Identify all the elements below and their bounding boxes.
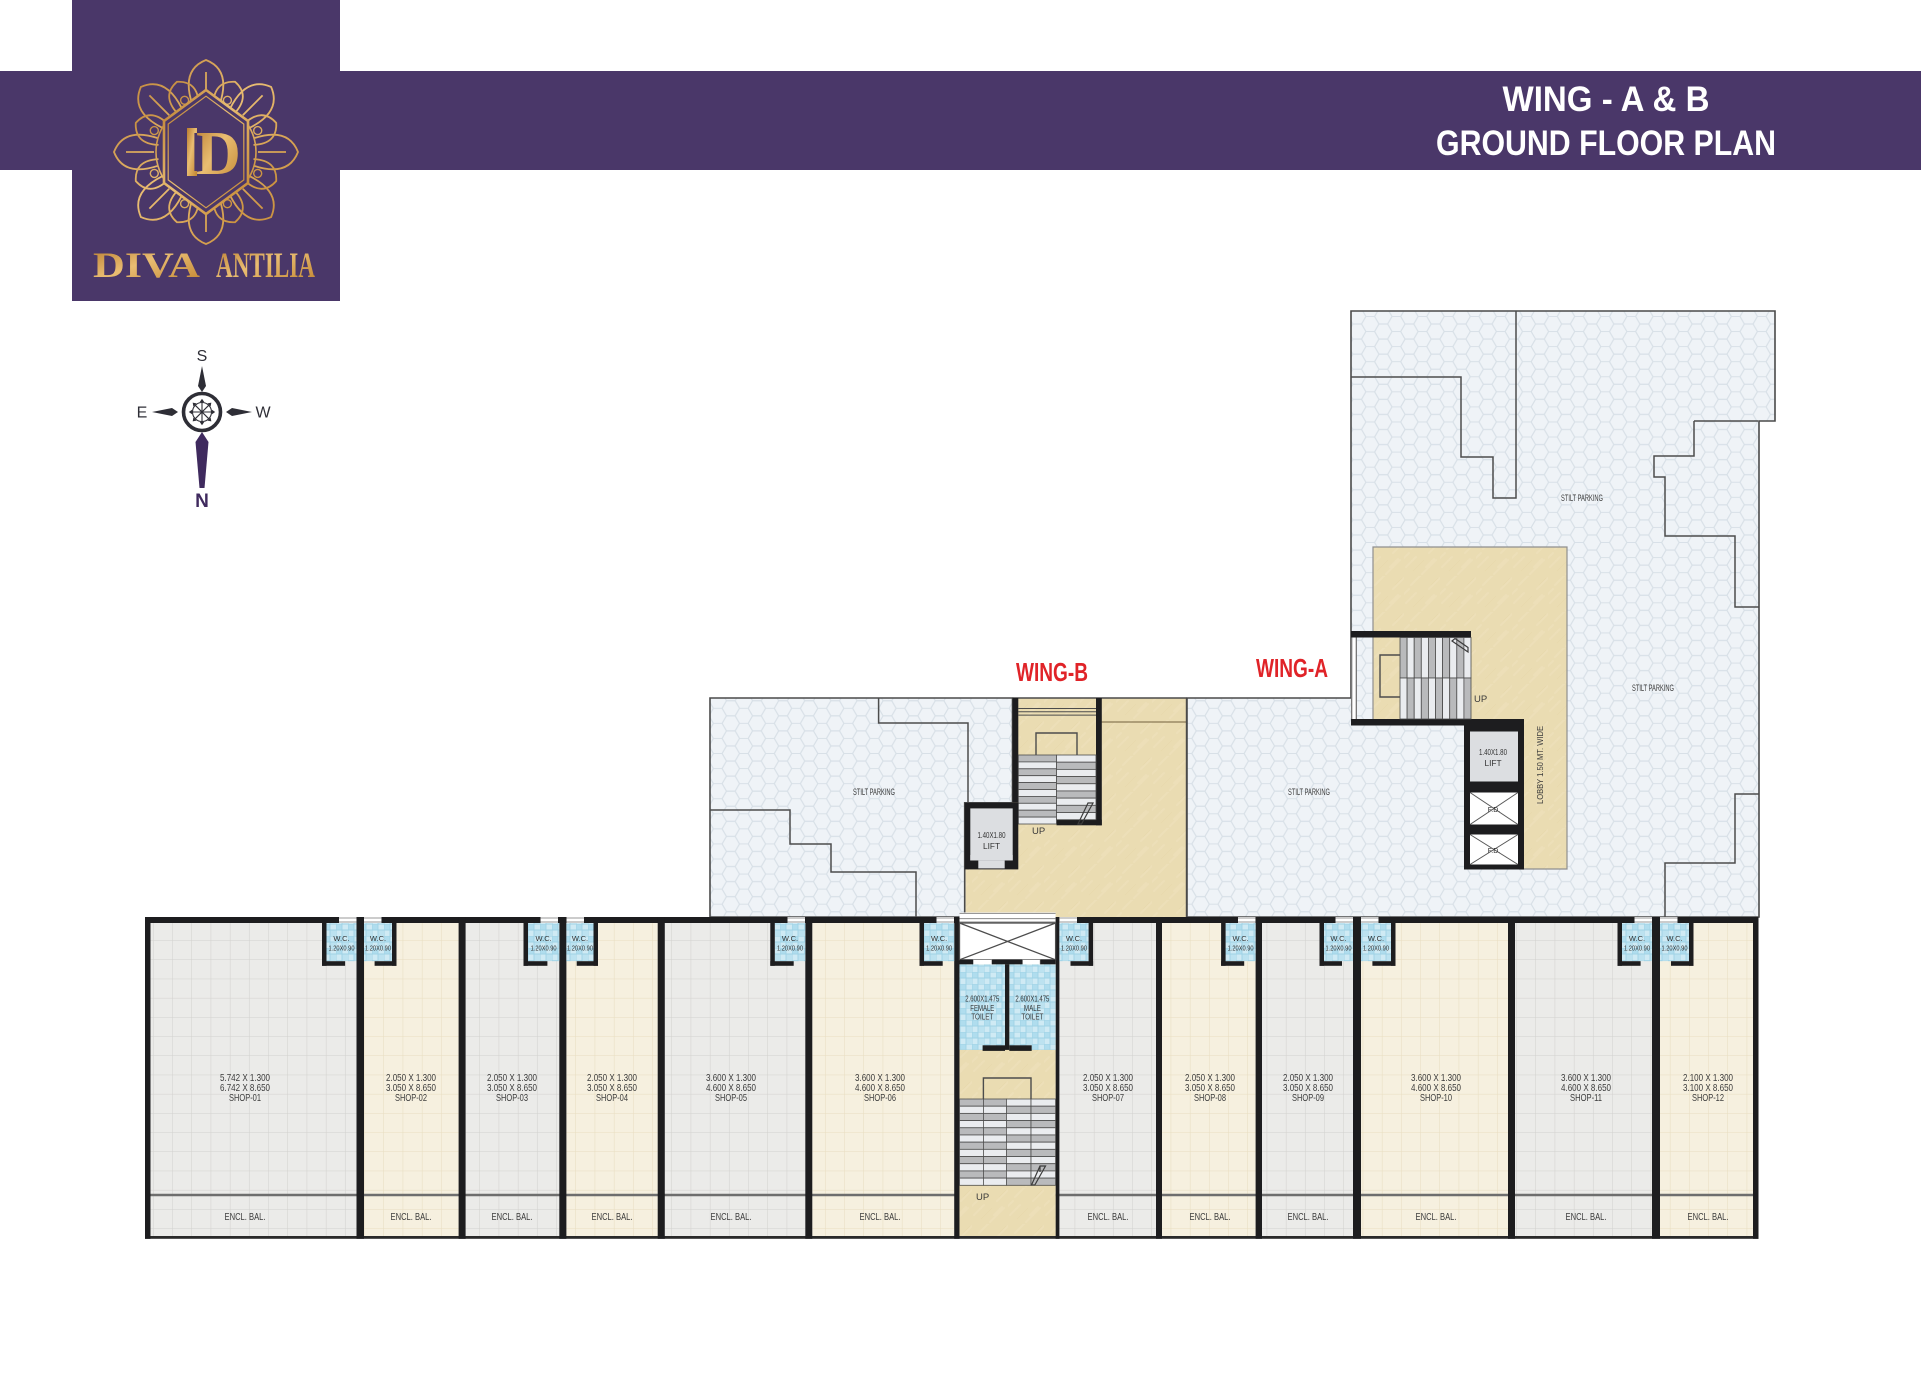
svg-text:STILT PARKING: STILT PARKING [1288, 787, 1330, 798]
svg-text:1.20X0.90: 1.20X0.90 [1363, 944, 1389, 953]
svg-text:SHOP-08: SHOP-08 [1194, 1092, 1226, 1104]
svg-text:UP: UP [1474, 694, 1487, 705]
svg-text:SHOP-12: SHOP-12 [1692, 1092, 1724, 1104]
svg-text:E: E [137, 405, 148, 422]
svg-text:WING-B: WING-B [1016, 657, 1088, 687]
svg-text:UP: UP [976, 1192, 989, 1203]
svg-text:W.C.: W.C. [535, 934, 551, 943]
svg-text:1.20X0.90: 1.20X0.90 [1061, 944, 1087, 953]
svg-text:W.C.: W.C. [1368, 934, 1384, 943]
svg-text:1.20X0.90: 1.20X0.90 [531, 944, 557, 953]
svg-text:1.20X0.90: 1.20X0.90 [1624, 944, 1650, 953]
svg-text:W.C.: W.C. [370, 934, 386, 943]
svg-text:1.20X0.90: 1.20X0.90 [365, 944, 391, 953]
svg-text:WING-A: WING-A [1256, 653, 1328, 683]
svg-text:ENCL. BAL.: ENCL. BAL. [711, 1211, 752, 1223]
svg-text:ENCL. BAL.: ENCL. BAL. [1688, 1211, 1729, 1223]
svg-text:ENCL. BAL.: ENCL. BAL. [1288, 1211, 1329, 1223]
svg-text:W: W [255, 405, 271, 422]
svg-text:D: D [196, 120, 241, 188]
svg-text:W.C.: W.C. [1232, 934, 1248, 943]
svg-text:W.C.: W.C. [333, 934, 349, 943]
svg-text:ANTILIA: ANTILIA [216, 245, 315, 285]
svg-text:STILT PARKING: STILT PARKING [853, 787, 895, 798]
svg-text:ENCL. BAL.: ENCL. BAL. [1416, 1211, 1457, 1223]
svg-text:STILT PARKING: STILT PARKING [1632, 683, 1674, 694]
svg-text:1.20X0.90: 1.20X0.90 [926, 944, 952, 953]
svg-text:SHOP-07: SHOP-07 [1092, 1092, 1124, 1104]
svg-text:1.20X0.90: 1.20X0.90 [1326, 944, 1352, 953]
svg-text:W.C.: W.C. [1066, 934, 1082, 943]
svg-text:1.40X1.80: 1.40X1.80 [1479, 747, 1507, 757]
svg-text:1.40X1.80: 1.40X1.80 [978, 830, 1006, 840]
svg-text:F.D.: F.D. [1488, 807, 1501, 814]
svg-text:SHOP-03: SHOP-03 [496, 1092, 528, 1104]
svg-text:ENCL. BAL.: ENCL. BAL. [1190, 1211, 1231, 1223]
svg-text:LIFT: LIFT [983, 841, 1000, 851]
svg-text:TOILET: TOILET [971, 1013, 993, 1022]
svg-text:2.600X1.475: 2.600X1.475 [1015, 995, 1050, 1004]
svg-text:WING - A & B: WING - A & B [1503, 80, 1710, 119]
svg-text:2.600X1.475: 2.600X1.475 [965, 995, 1000, 1004]
svg-text:ENCL. BAL.: ENCL. BAL. [492, 1211, 533, 1223]
svg-text:UP: UP [1032, 826, 1045, 837]
svg-text:ENCL. BAL.: ENCL. BAL. [592, 1211, 633, 1223]
svg-text:ENCL. BAL.: ENCL. BAL. [1566, 1211, 1607, 1223]
svg-text:F.D.: F.D. [1488, 848, 1501, 855]
svg-text:S: S [197, 348, 208, 365]
svg-text:ENCL. BAL.: ENCL. BAL. [860, 1211, 901, 1223]
svg-text:SHOP-10: SHOP-10 [1420, 1092, 1452, 1104]
svg-text:LOBBY 1.50 MT. WIDE: LOBBY 1.50 MT. WIDE [1535, 726, 1545, 804]
svg-text:GROUND FLOOR PLAN: GROUND FLOOR PLAN [1436, 124, 1776, 163]
svg-text:SHOP-06: SHOP-06 [864, 1092, 896, 1104]
svg-text:W.C.: W.C. [572, 934, 588, 943]
svg-text:N: N [195, 491, 209, 512]
svg-text:SHOP-02: SHOP-02 [395, 1092, 427, 1104]
svg-text:SHOP-05: SHOP-05 [715, 1092, 747, 1104]
svg-text:W.C.: W.C. [931, 934, 947, 943]
svg-text:1.20X0.90: 1.20X0.90 [567, 944, 593, 953]
svg-text:LIFT: LIFT [1484, 758, 1501, 768]
svg-text:SHOP-04: SHOP-04 [596, 1092, 628, 1104]
svg-text:1.20X0.90: 1.20X0.90 [777, 944, 803, 953]
svg-text:ENCL. BAL.: ENCL. BAL. [391, 1211, 432, 1223]
svg-text:SHOP-11: SHOP-11 [1570, 1092, 1602, 1104]
svg-text:1.20X0.90: 1.20X0.90 [1662, 944, 1688, 953]
svg-text:1.20X0.90: 1.20X0.90 [329, 944, 355, 953]
svg-text:SHOP-09: SHOP-09 [1292, 1092, 1324, 1104]
svg-text:W.C.: W.C. [1666, 934, 1682, 943]
svg-text:TOILET: TOILET [1021, 1013, 1043, 1022]
svg-text:W.C.: W.C. [1629, 934, 1645, 943]
svg-text:SHOP-01: SHOP-01 [229, 1092, 261, 1104]
svg-text:STILT PARKING: STILT PARKING [1561, 493, 1603, 504]
svg-text:W.C.: W.C. [782, 934, 798, 943]
svg-text:DIVA: DIVA [93, 245, 200, 285]
svg-text:W.C.: W.C. [1330, 934, 1346, 943]
svg-text:ENCL. BAL.: ENCL. BAL. [225, 1211, 266, 1223]
svg-text:1.20X0.90: 1.20X0.90 [1228, 944, 1254, 953]
svg-text:ENCL. BAL.: ENCL. BAL. [1088, 1211, 1129, 1223]
